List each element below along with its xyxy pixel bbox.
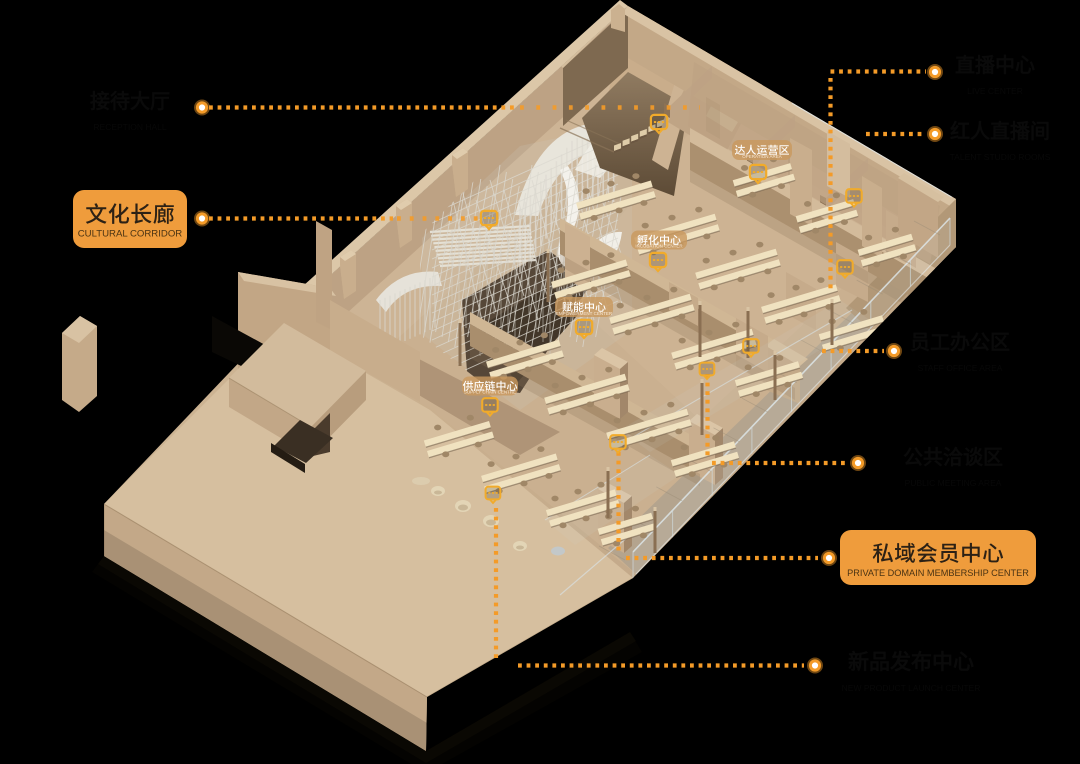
svg-text:INCUBATION CENTER: INCUBATION CENTER [635, 244, 683, 249]
svg-text:LIVE CENTER: LIVE CENTER [967, 86, 1023, 96]
svg-text:NEW PRODUCT LAUNCH CENTER: NEW PRODUCT LAUNCH CENTER [842, 683, 981, 693]
svg-text:RECEPTION HALL: RECEPTION HALL [93, 122, 166, 132]
svg-text:STAFF OFFICE AREA: STAFF OFFICE AREA [918, 363, 1003, 373]
svg-text:OPERATION AREA: OPERATION AREA [742, 154, 781, 159]
svg-text:接待大厅: 接待大厅 [90, 89, 170, 113]
svg-text:直播中心: 直播中心 [955, 53, 1035, 77]
svg-text:TALENT STUDIO ROOMS: TALENT STUDIO ROOMS [950, 152, 1051, 162]
svg-text:新品发布中心: 新品发布中心 [848, 650, 974, 674]
svg-text:SUPPLY CHAIN CENTRE: SUPPLY CHAIN CENTRE [464, 390, 516, 395]
svg-text:红人直播间: 红人直播间 [950, 119, 1050, 143]
svg-text:公共洽谈区: 公共洽谈区 [903, 445, 1003, 469]
svg-text:PUBLIC MEETING AREA: PUBLIC MEETING AREA [905, 478, 1002, 488]
svg-text:PRIVATE DOMAIN MEMBERSHIP CENT: PRIVATE DOMAIN MEMBERSHIP CENTER [847, 568, 1029, 578]
svg-text:EMPOWERMENT CENTER: EMPOWERMENT CENTER [556, 311, 613, 316]
svg-text:CULTURAL CORRIDOR: CULTURAL CORRIDOR [78, 229, 183, 240]
svg-text:员工办公区: 员工办公区 [910, 330, 1010, 354]
